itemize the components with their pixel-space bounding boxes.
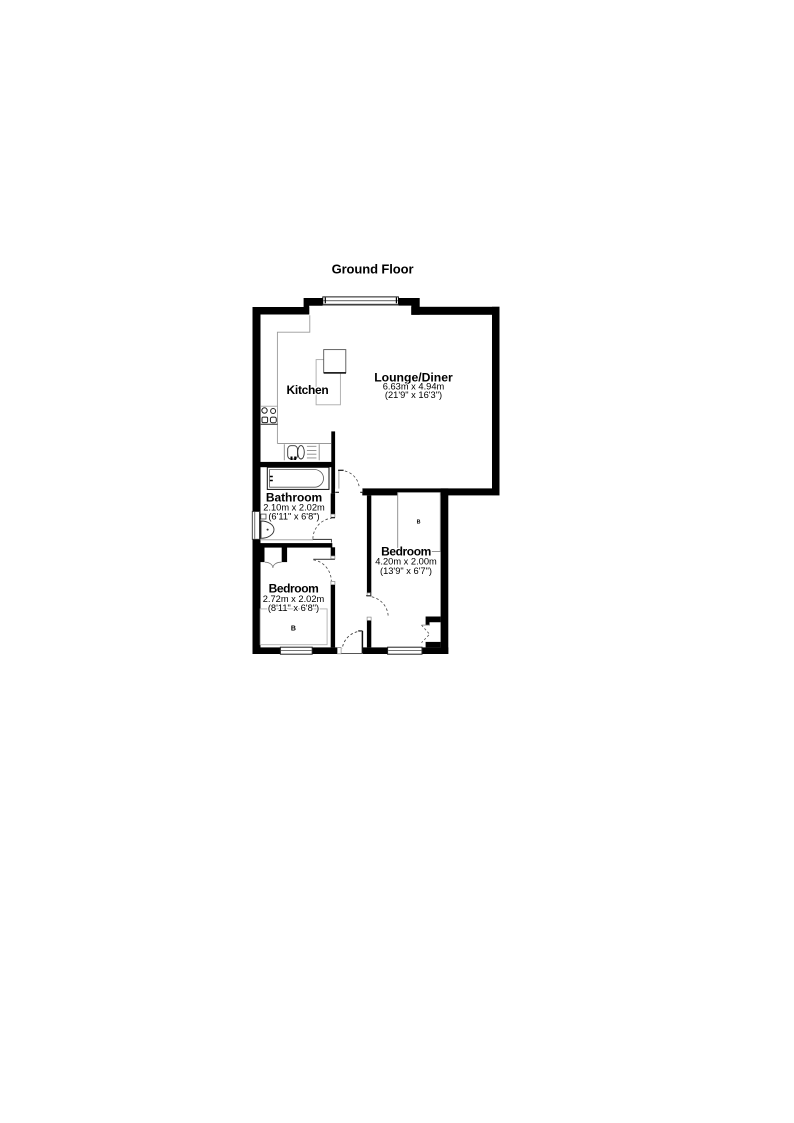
svg-text:(13'9" x 6'7"): (13'9" x 6'7")	[380, 566, 432, 576]
svg-text:Ground Floor: Ground Floor	[332, 262, 414, 277]
svg-text:B: B	[291, 625, 296, 632]
svg-text:(6'11" x 6'8"): (6'11" x 6'8")	[268, 511, 319, 521]
svg-text:(21'9" x 16'3"): (21'9" x 16'3")	[385, 390, 442, 400]
svg-text:(8'11" x 6'8"): (8'11" x 6'8")	[268, 603, 319, 613]
svg-text:Kitchen: Kitchen	[287, 383, 329, 397]
svg-text:B: B	[417, 520, 421, 526]
